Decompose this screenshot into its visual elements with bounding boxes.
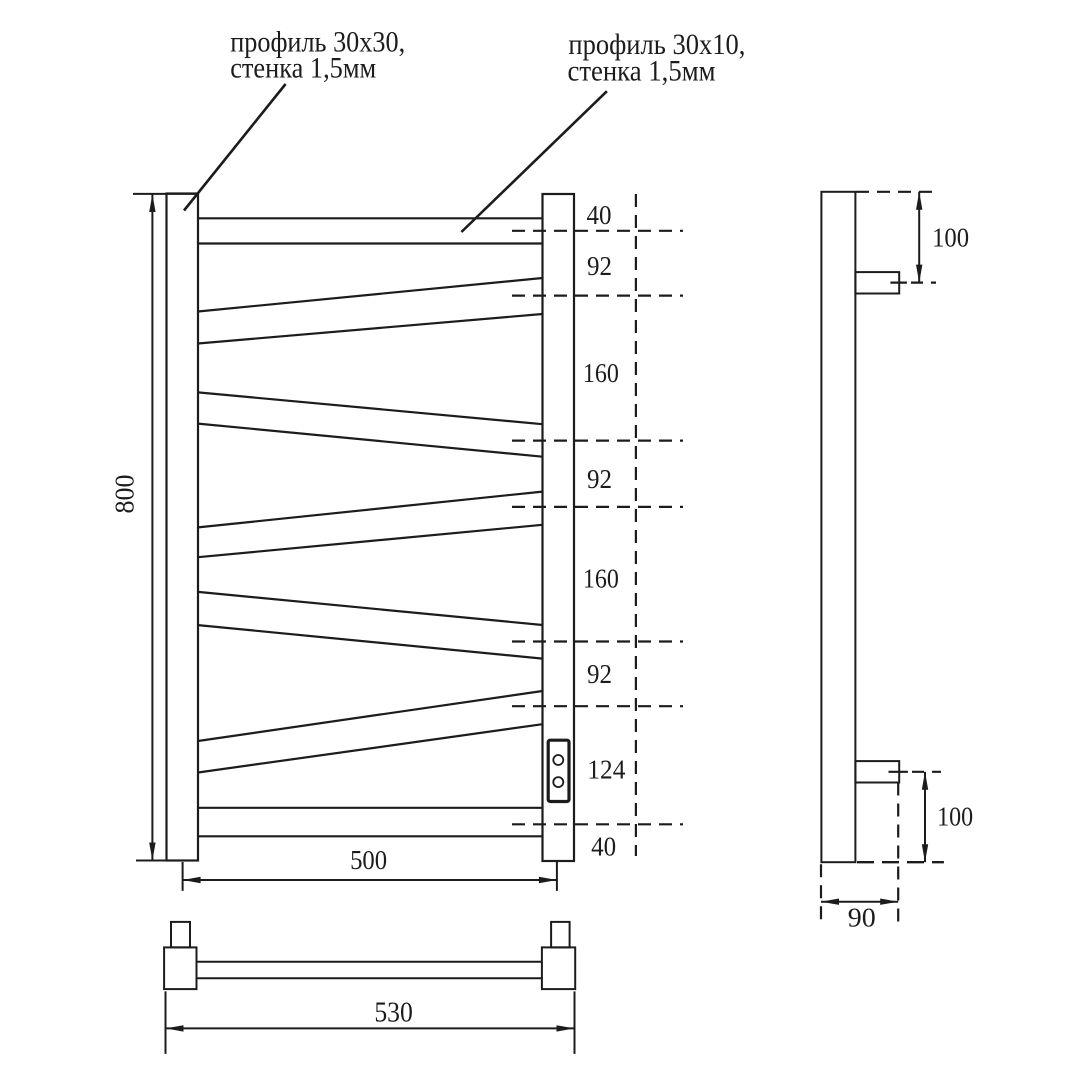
svg-text:92: 92 — [587, 659, 612, 689]
svg-text:40: 40 — [591, 832, 616, 862]
svg-text:стенка 1,5мм: стенка 1,5мм — [230, 52, 376, 85]
svg-text:стенка 1,5мм: стенка 1,5мм — [568, 55, 716, 88]
svg-text:160: 160 — [583, 358, 619, 388]
svg-text:92: 92 — [587, 464, 612, 494]
svg-text:160: 160 — [583, 564, 619, 594]
svg-text:100: 100 — [937, 802, 973, 832]
svg-text:92: 92 — [587, 251, 612, 281]
svg-text:124: 124 — [587, 755, 625, 785]
svg-text:800: 800 — [110, 475, 140, 514]
svg-text:530: 530 — [374, 997, 413, 1029]
svg-text:500: 500 — [350, 845, 387, 875]
svg-text:100: 100 — [932, 223, 969, 253]
svg-text:90: 90 — [848, 903, 876, 933]
svg-text:40: 40 — [587, 200, 612, 230]
